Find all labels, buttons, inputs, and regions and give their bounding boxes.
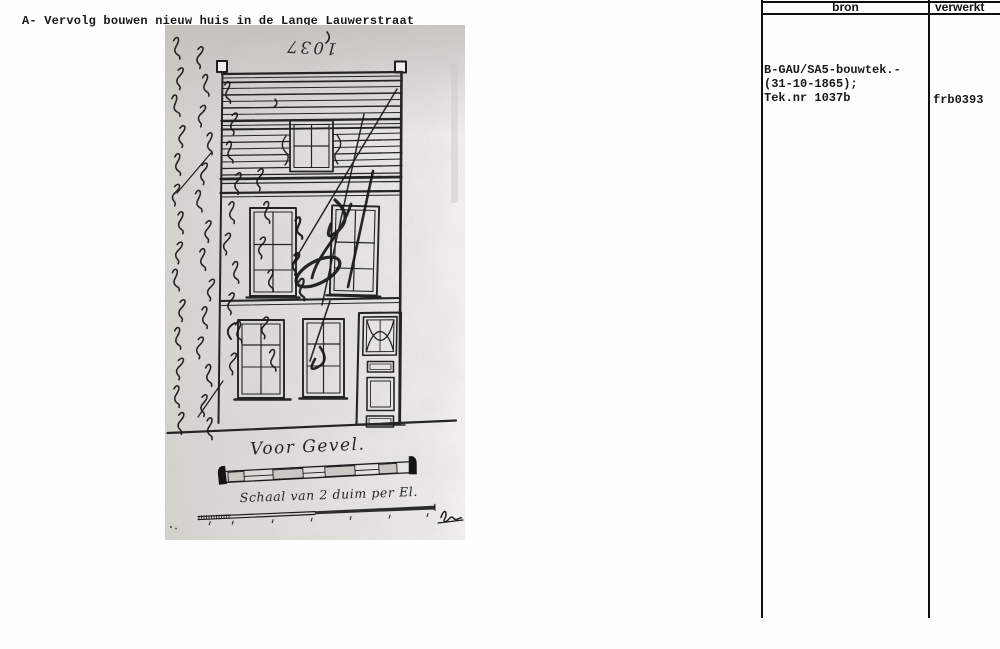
bron-cell: B-GAU/SA5-bouwtek.- (31-10-1865); Tek.nr… <box>764 63 901 105</box>
table-vertical-rule-middle <box>928 0 930 618</box>
column-header-verwerkt: verwerkt <box>935 0 984 14</box>
column-header-bron: bron <box>763 0 928 14</box>
table-vertical-rule-left <box>761 0 763 618</box>
plan-number-label: 1037 <box>285 37 338 59</box>
cornice-post-right <box>395 62 406 73</box>
bron-line: B-GAU/SA5-bouwtek.- <box>764 63 901 77</box>
bron-line: Tek.nr 1037b <box>764 91 901 105</box>
scanned-facade-drawing: 1037 Voor Gevel. Schaal van 2 duim per E… <box>165 25 465 540</box>
verwerkt-cell: frb0393 <box>933 93 983 107</box>
archive-card: A- Vervolg bouwen nieuw huis in de Lange… <box>0 0 1000 649</box>
first-floor-window-left <box>247 208 300 298</box>
cornice-post-left <box>217 61 227 72</box>
scan-paper-texture <box>165 25 465 540</box>
bron-line: (31-10-1865); <box>764 77 901 91</box>
